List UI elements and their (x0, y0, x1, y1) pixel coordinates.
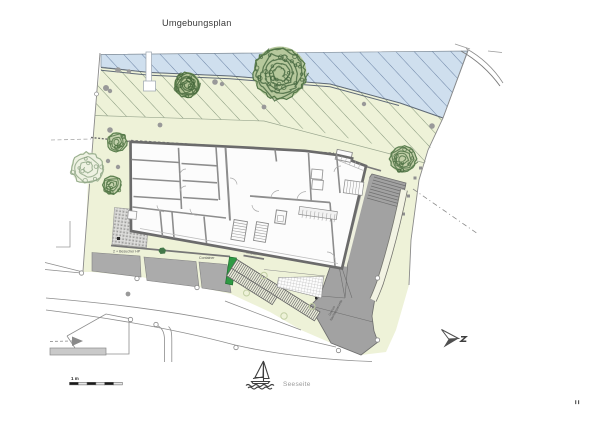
svg-text:Umgebungsplan: Umgebungsplan (162, 18, 232, 28)
svg-text:Seeseite: Seeseite (283, 381, 311, 388)
svg-text:Container: Container (199, 256, 215, 260)
svg-text:2 + Besucher HP: 2 + Besucher HP (113, 250, 141, 254)
svg-text:1 m: 1 m (71, 376, 79, 381)
